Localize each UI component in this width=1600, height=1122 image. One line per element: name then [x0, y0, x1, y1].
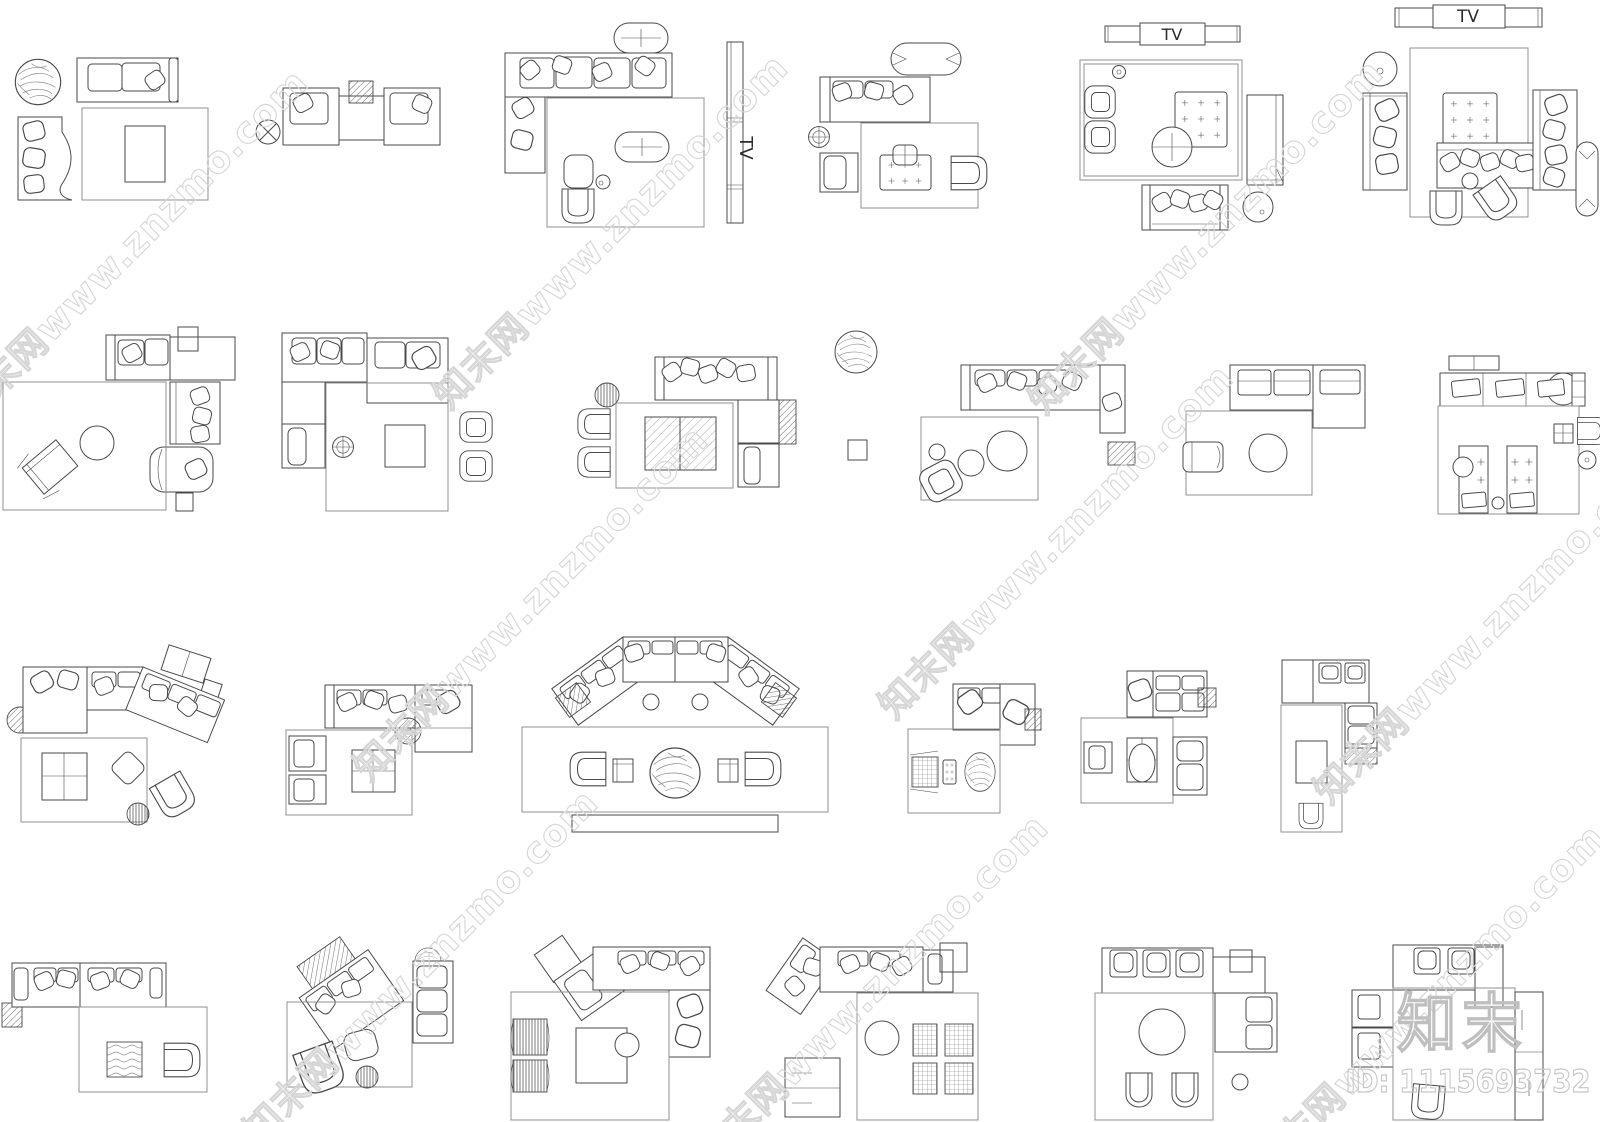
cad-furniture-sheet: TV — [0, 0, 1600, 1122]
sun-lounger-left — [1453, 446, 1488, 513]
sofa — [1440, 373, 1585, 406]
furniture-block-r1c6: TV — [1363, 5, 1598, 225]
cube-chair — [289, 736, 326, 771]
side-table — [718, 759, 738, 782]
round-wood-table-top — [835, 331, 877, 373]
armchair-with-ottoman — [562, 155, 594, 223]
znzmo-logo: 知末 — [1397, 988, 1527, 1062]
square-table-with-lamp — [576, 1028, 639, 1083]
armchair — [1085, 121, 1115, 153]
round-side-table-icon — [809, 127, 830, 148]
round-plant-top-icon — [15, 59, 60, 104]
hatched-table — [779, 400, 796, 444]
grid-ottoman — [945, 1024, 973, 1056]
right-sofa — [80, 963, 166, 1007]
nesting-table-medium — [958, 450, 984, 476]
coffee-table — [125, 126, 165, 182]
sofa — [820, 77, 930, 122]
daybed — [150, 447, 213, 492]
corner-table — [1282, 660, 1313, 703]
furniture-block-r4c5 — [1095, 948, 1277, 1120]
small-table — [1113, 66, 1126, 79]
oval-table — [1127, 738, 1157, 782]
wood-coffee-table — [107, 1042, 142, 1077]
rug — [3, 382, 166, 510]
watermark-text: 知末网www.znzmo.com — [345, 417, 717, 789]
furniture-block-r1c4 — [809, 43, 987, 208]
dotted-ottoman — [943, 760, 956, 784]
tv-console: TV — [1395, 5, 1542, 28]
round-table — [1152, 127, 1192, 167]
sofa — [77, 58, 178, 102]
lounger — [1183, 442, 1223, 472]
corner-seat — [738, 400, 779, 443]
nesting-table-large — [987, 431, 1027, 471]
left-sofa — [1363, 93, 1407, 190]
armchair — [1578, 417, 1600, 444]
sofa — [953, 684, 1035, 745]
nesting-table-small — [929, 444, 945, 460]
grid-ottoman — [913, 1063, 937, 1094]
u-chair — [1172, 1073, 1198, 1107]
tv-console: TV — [1105, 23, 1240, 45]
cube-chair — [1084, 742, 1112, 773]
striped-stool — [595, 383, 619, 407]
chaise — [1173, 737, 1207, 795]
striped-stool — [356, 1066, 378, 1088]
armchair — [578, 409, 610, 439]
diamond-ottoman — [110, 750, 147, 787]
coffee-table — [385, 425, 425, 467]
small-stool — [643, 694, 659, 710]
furniture-block-r4c3 — [511, 935, 710, 1120]
u-chair — [1126, 1073, 1152, 1107]
small-stool — [692, 694, 708, 710]
hatched-table — [349, 81, 373, 103]
side-table — [613, 759, 633, 782]
small-table — [1492, 497, 1504, 509]
right-chaise — [170, 382, 220, 444]
watermark-text: 知末网www.znzmo.com — [685, 805, 1057, 1122]
hatched-table — [1025, 709, 1041, 730]
round-table — [1249, 434, 1287, 472]
left-sofa — [12, 963, 80, 1007]
round-side-table-icon — [333, 437, 354, 458]
striped-stool — [127, 803, 149, 825]
hatched-table — [1198, 688, 1216, 707]
right-bench — [1533, 90, 1577, 190]
tv-label: TV — [735, 135, 756, 160]
capsule-lounge — [1576, 142, 1598, 216]
watermark-id-text: ID: 1115693732 — [1346, 1064, 1591, 1100]
side-table — [178, 327, 198, 351]
furniture-block-r3c1 — [7, 645, 225, 825]
sun-lounger-right — [1507, 446, 1537, 513]
bench — [282, 424, 325, 468]
round-table — [1139, 1009, 1185, 1055]
chaise — [18, 117, 72, 200]
armchair — [164, 1043, 200, 1077]
wood-oval-table — [965, 753, 995, 792]
furniture-block-r3c5 — [1081, 671, 1216, 803]
stool — [460, 451, 492, 481]
side-table — [176, 493, 193, 511]
sofa-with-chaise — [1230, 365, 1365, 428]
small-stool — [1232, 1074, 1248, 1090]
side-table — [1449, 356, 1499, 370]
tv-label: TV — [1161, 25, 1183, 44]
headrest-sofa — [1102, 948, 1213, 993]
tufted-coffee-table — [880, 145, 931, 190]
sofa — [655, 357, 777, 400]
corner-sofa — [1127, 671, 1207, 717]
chaise — [820, 153, 858, 192]
furniture-block-r3c4 — [908, 684, 1041, 813]
armchair — [951, 156, 987, 190]
furniture-block-r2c6 — [1438, 356, 1600, 514]
inner-sofa — [1437, 143, 1535, 188]
armchair — [149, 771, 198, 821]
tv-bench — [572, 815, 778, 832]
armchair — [1430, 191, 1462, 225]
side-table — [1578, 451, 1596, 469]
right-loveseat — [384, 88, 440, 145]
four-pane-table — [1554, 424, 1573, 443]
small-table — [1462, 173, 1478, 189]
round-wood-coffee-table — [650, 748, 700, 798]
stool — [460, 412, 492, 442]
chaise — [738, 444, 779, 487]
grid-ottoman — [913, 1024, 937, 1056]
lounge-chair — [15, 434, 83, 502]
grid-ottoman — [945, 1063, 973, 1094]
grid-armchair — [910, 751, 938, 793]
tufted-ottoman — [1443, 93, 1497, 148]
round-table — [865, 1021, 899, 1055]
top-sofa — [106, 335, 170, 380]
curved-sectional-sofa — [552, 637, 799, 725]
l-sectional-sofa — [282, 333, 448, 426]
cube-chair — [289, 775, 326, 804]
capsule-lounge — [891, 43, 961, 75]
furniture-blocks-drawing: TV — [0, 0, 1600, 1122]
striped-armchair — [511, 1019, 549, 1055]
furniture-block-r4c1 — [2, 963, 207, 1092]
armchair — [1085, 86, 1115, 118]
armchair — [578, 447, 610, 477]
watermark-text: 知末网www.znzmo.com — [1305, 440, 1600, 812]
tv-label: TV — [1456, 7, 1479, 27]
square-table — [42, 753, 87, 800]
side-table — [1230, 950, 1252, 972]
armchair — [745, 752, 781, 786]
chaise — [1215, 993, 1277, 1052]
armchair — [1299, 803, 1323, 829]
oval-side-table-icon — [614, 23, 668, 53]
striped-armchair — [511, 1060, 549, 1092]
round-table — [80, 426, 114, 460]
console — [1213, 957, 1265, 993]
small-square-stool — [848, 440, 867, 460]
